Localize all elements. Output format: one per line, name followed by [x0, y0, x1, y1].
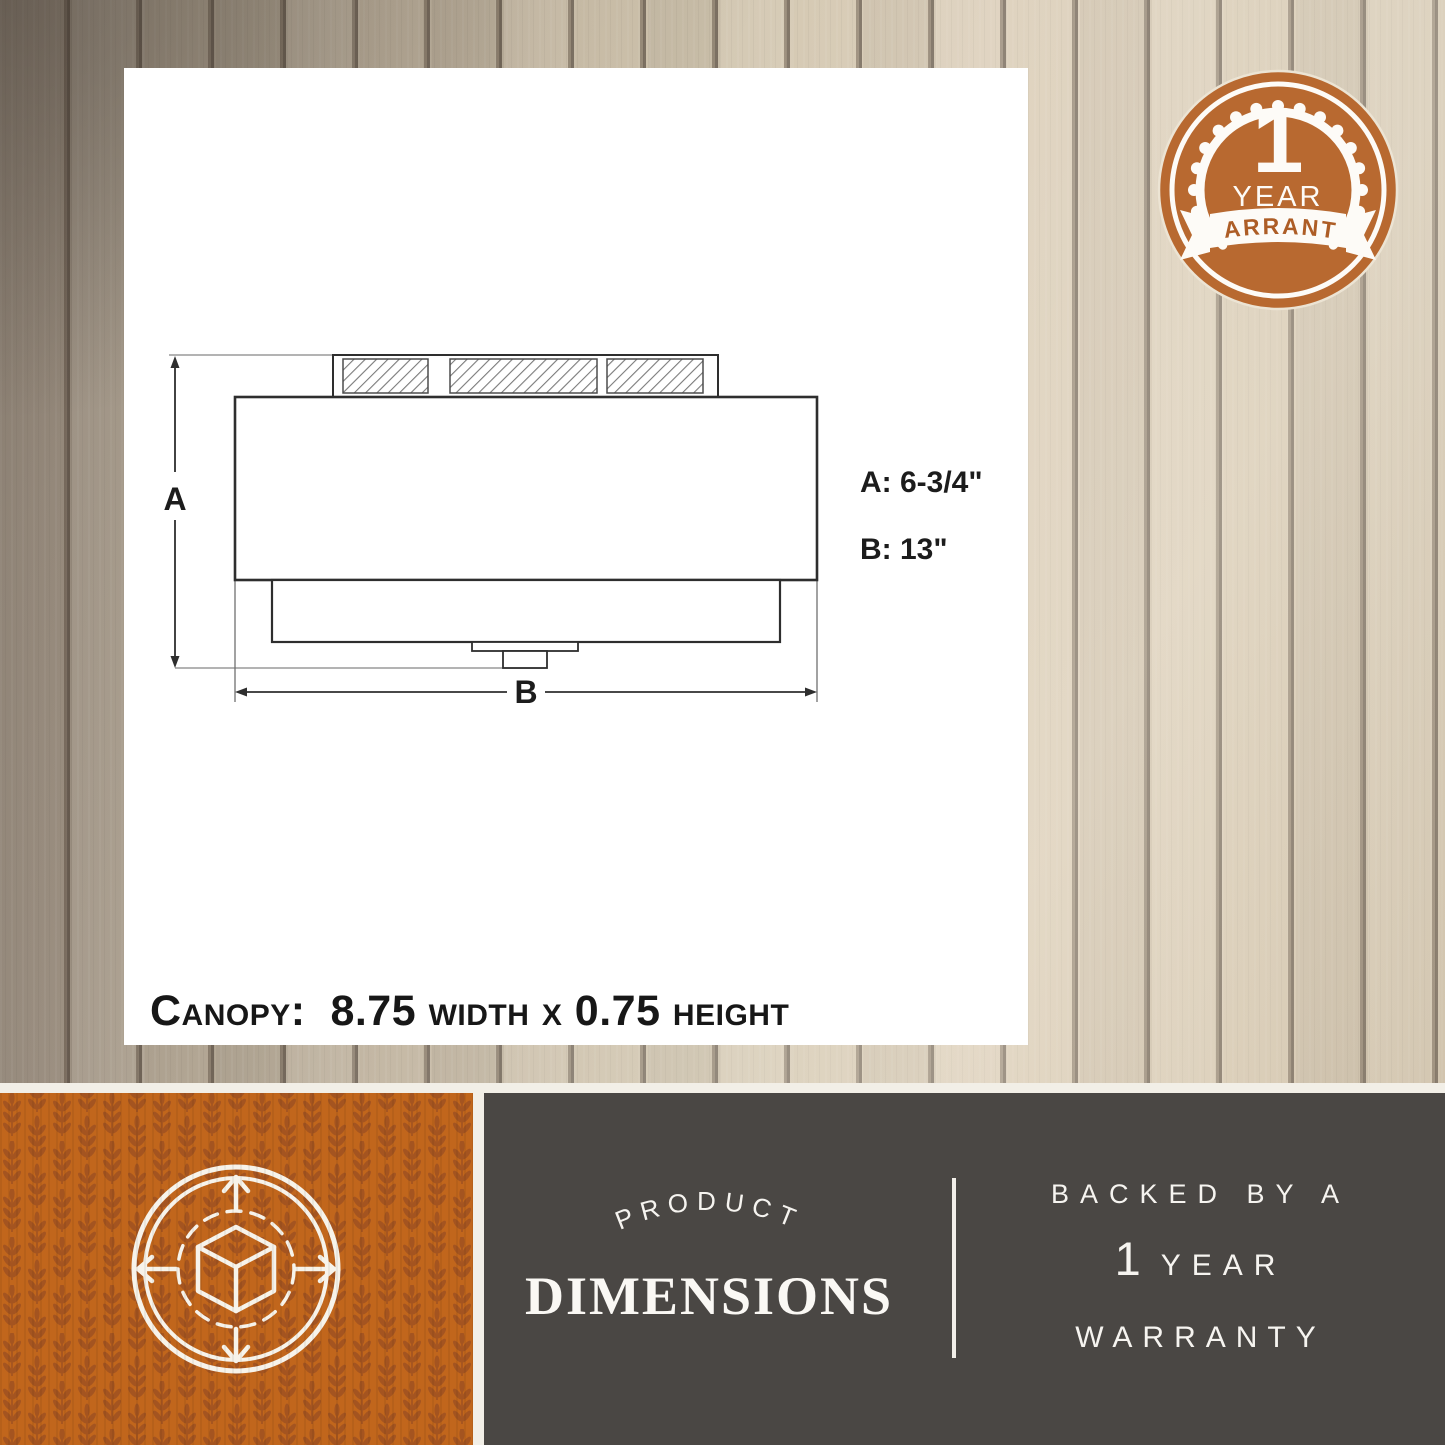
arched-product-text: PRODUCT	[484, 1145, 934, 1275]
dimensions-label: DIMENSIONS	[484, 1265, 934, 1327]
dimensions-icon-tile	[0, 1093, 473, 1445]
fixture-dimension-drawing: A B A: 6-3/4" B: 13"	[124, 68, 1028, 1045]
svg-text:PRODUCT: PRODUCT	[611, 1186, 808, 1236]
wheat-pattern	[0, 1093, 473, 1445]
cube-expand-arrows-icon	[0, 1093, 473, 1445]
footer-band: PRODUCT DIMENSIONS BACKED BY A 1 YEAR WA…	[0, 1083, 1445, 1445]
product-label: PRODUCT	[611, 1186, 808, 1236]
dimension-a: A	[163, 356, 186, 668]
dim-a-value: A: 6-3/4"	[860, 466, 983, 499]
dim-b-letter: B	[514, 674, 537, 710]
year-word: YEAR	[1161, 1249, 1287, 1283]
dim-b-value: B: 13"	[860, 533, 948, 566]
warranty-text-block: BACKED BY A 1 YEAR WARRANTY	[956, 1093, 1445, 1445]
dim-a-letter: A	[163, 481, 186, 517]
footer-text-panel: PRODUCT DIMENSIONS BACKED BY A 1 YEAR WA…	[484, 1093, 1445, 1445]
warranty-line: WARRANTY	[956, 1321, 1445, 1355]
year-number: 1	[1115, 1231, 1141, 1286]
badge-year-number: 1	[1252, 90, 1303, 192]
dimension-b: B	[235, 674, 817, 710]
product-drawing-card: A B A: 6-3/4" B: 13" Canopy: 8.75 width …	[124, 68, 1028, 1045]
one-year-line: 1 YEAR	[956, 1231, 1445, 1286]
warranty-seal-icon: 1 YEAR WARRANTY	[1148, 60, 1408, 320]
canopy-size-note: Canopy: 8.75 width x 0.75 height	[150, 987, 789, 1036]
fixture-body-outline	[235, 397, 817, 668]
canopy-outline	[333, 355, 718, 397]
backed-by-line: BACKED BY A	[956, 1179, 1445, 1210]
